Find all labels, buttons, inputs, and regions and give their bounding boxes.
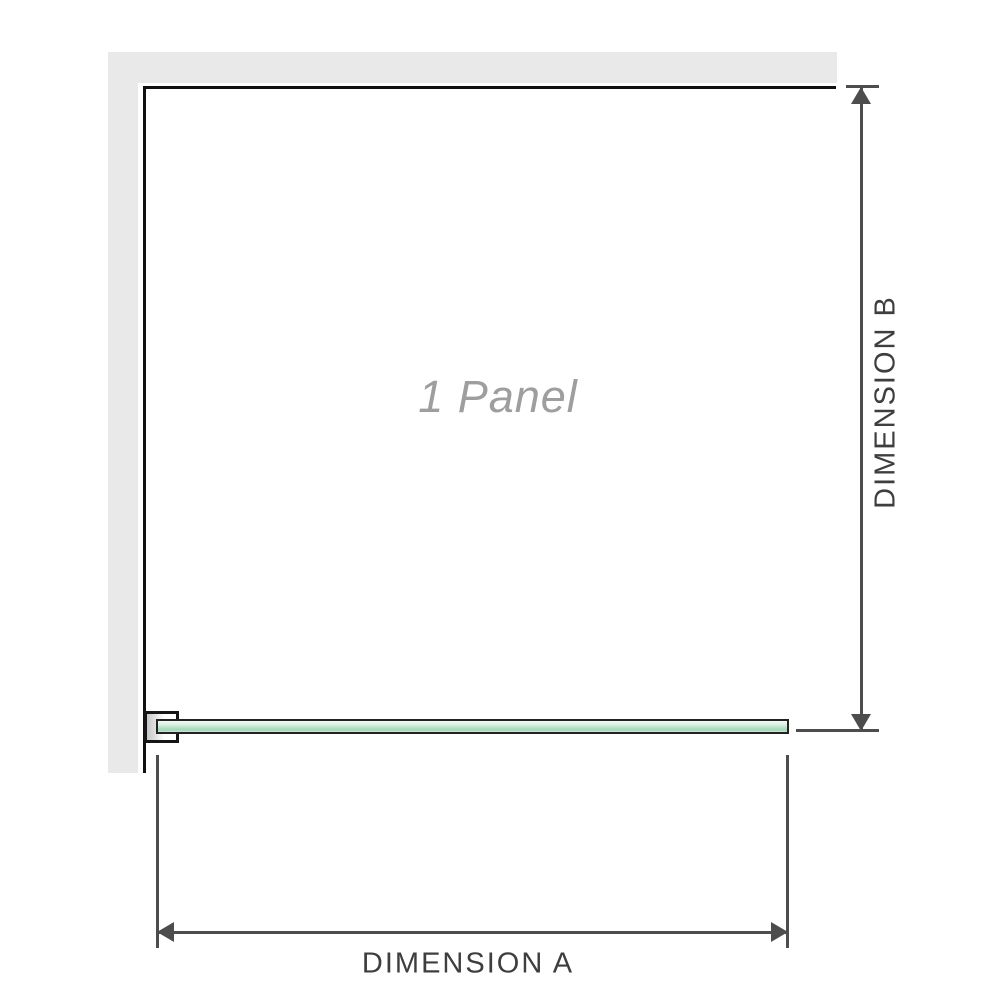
dimension-a-extension-right [786, 755, 789, 948]
glass-panel-bar [156, 719, 789, 734]
dimension-a-extension-left [156, 755, 159, 948]
dimension-b-line [860, 88, 863, 731]
panel-outline-left [143, 86, 146, 773]
arrow-up-icon [851, 87, 871, 104]
arrow-left-icon [157, 922, 174, 942]
shower-panel-diagram: 1 Panel DIMENSION B DIMENSION A [0, 0, 1000, 1000]
arrow-right-icon [771, 922, 788, 942]
panel-outline-top [143, 86, 836, 89]
dimension-a-line [157, 931, 788, 934]
dimension-a-label: DIMENSION A [362, 948, 574, 981]
wall-left [108, 52, 138, 773]
dimension-b-tick-bottom [796, 729, 879, 732]
dimension-b-tick-top [846, 85, 879, 88]
panel-count-label: 1 Panel [418, 371, 578, 423]
dimension-b-label: DIMENSION B [870, 295, 903, 509]
wall-top [108, 52, 837, 83]
